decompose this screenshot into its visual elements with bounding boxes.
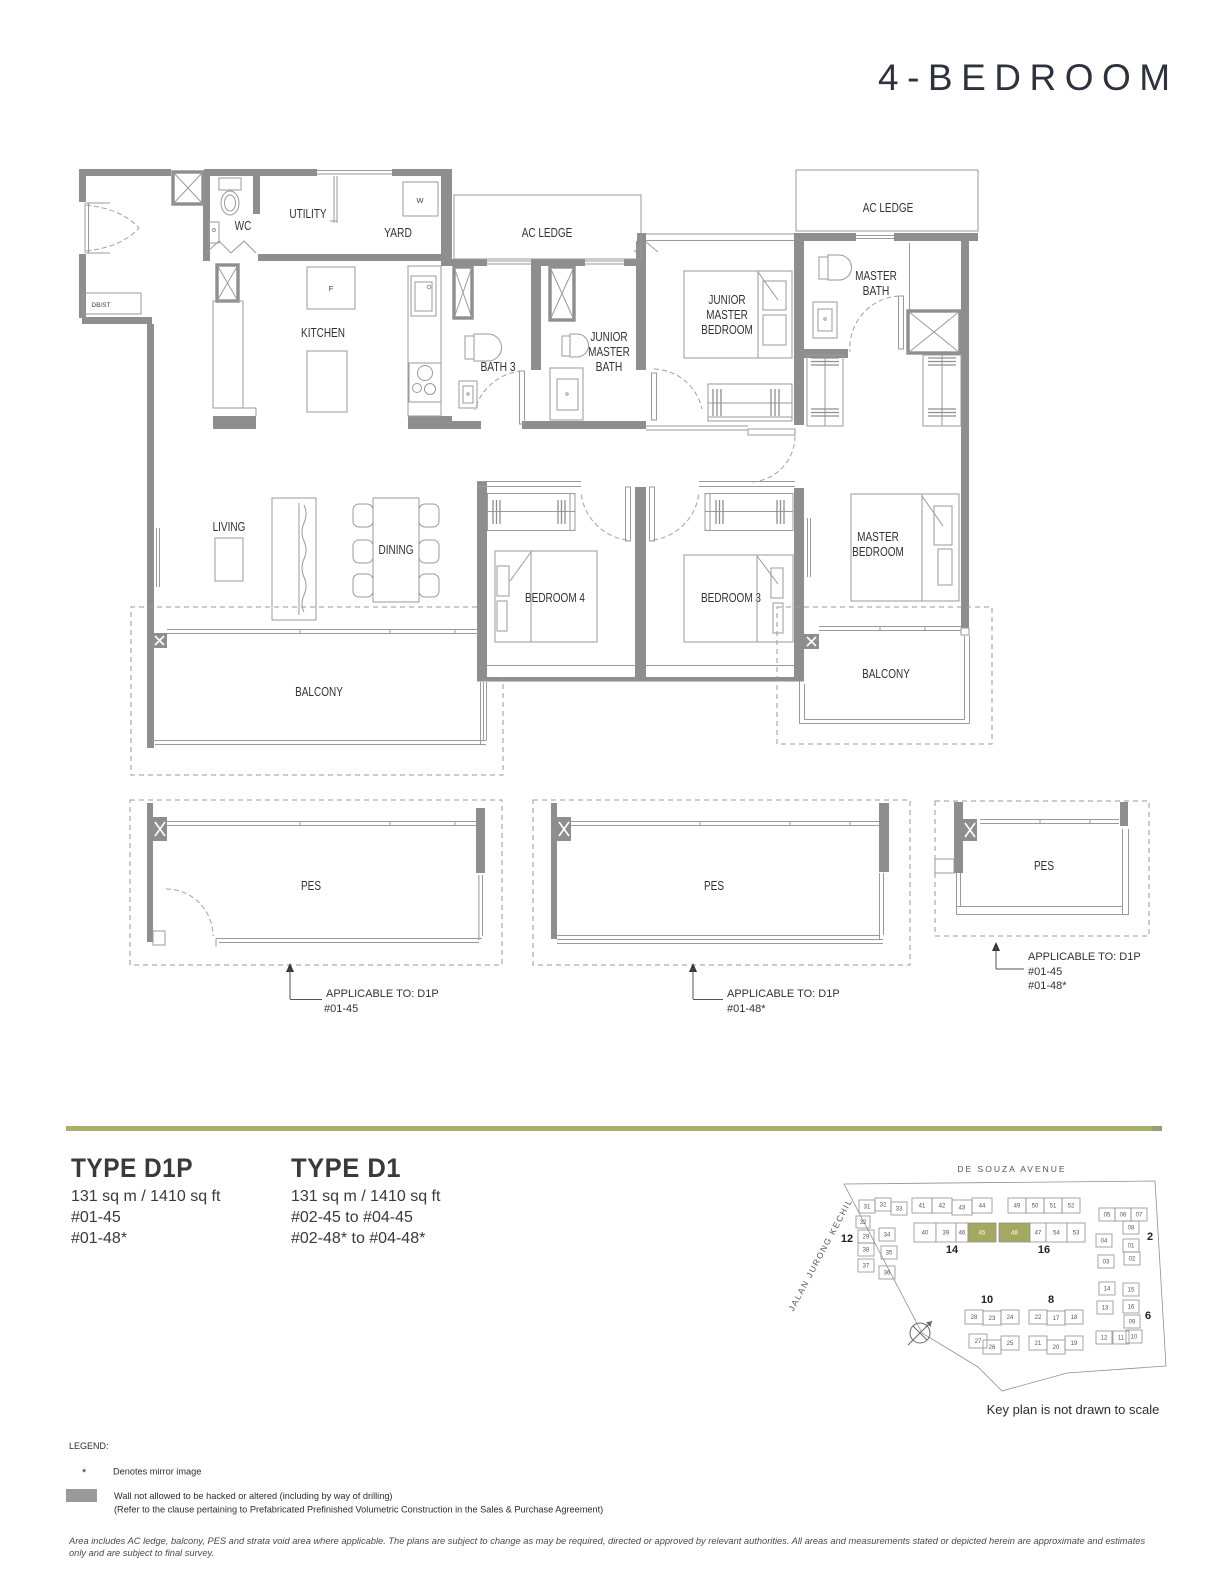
svg-text:10: 10 [981,1294,993,1306]
svg-text:131 sq m / 1410 sq ft: 131 sq m / 1410 sq ft [71,1188,221,1205]
svg-text:52: 52 [1068,1204,1075,1210]
svg-text:16: 16 [1038,1244,1050,1256]
svg-text:34: 34 [884,1233,891,1239]
svg-text:46: 46 [959,1231,966,1237]
svg-text:WC: WC [235,219,252,233]
svg-text:16: 16 [1128,1305,1135,1311]
svg-text:Denotes mirror image: Denotes mirror image [113,1467,201,1477]
svg-text:(Refer to the clause pertainin: (Refer to the clause pertaining to Prefa… [114,1505,603,1515]
svg-text:07: 07 [1136,1213,1143,1219]
svg-text:APPLICABLE TO: D1P: APPLICABLE TO: D1P [727,988,840,1000]
svg-text:YARD: YARD [384,226,412,240]
svg-text:50: 50 [1032,1204,1039,1210]
svg-text:24: 24 [1007,1315,1014,1321]
svg-text:02: 02 [1129,1257,1136,1263]
svg-text:28: 28 [971,1315,978,1321]
svg-text:51: 51 [1050,1204,1057,1210]
svg-text:APPLICABLE TO: D1P: APPLICABLE TO: D1P [1028,951,1141,963]
svg-text:#01-45: #01-45 [71,1209,121,1226]
svg-text:43: 43 [959,1206,966,1212]
svg-text:8: 8 [1048,1294,1054,1306]
svg-text:37: 37 [863,1264,870,1270]
svg-text:PES: PES [704,879,724,893]
svg-text:AC LEDGE: AC LEDGE [522,226,573,240]
svg-text:38: 38 [863,1248,870,1254]
svg-text:PES: PES [1034,859,1054,873]
svg-text:12: 12 [1101,1336,1108,1342]
svg-text:BALCONY: BALCONY [862,667,910,681]
svg-text:only and are subject to final: only and are subject to final survey. [69,1548,214,1558]
svg-text:TYPE D1P: TYPE D1P [71,1153,193,1183]
svg-text:BEDROOM 3: BEDROOM 3 [701,591,761,605]
svg-text:Key plan is not drawn to scale: Key plan is not drawn to scale [987,1402,1160,1417]
svg-text:KITCHEN: KITCHEN [301,326,345,340]
svg-text:47: 47 [1035,1231,1042,1237]
svg-text:49: 49 [1014,1204,1021,1210]
svg-text:BEDROOM: BEDROOM [701,323,753,337]
svg-text:36: 36 [884,1271,891,1277]
svg-text:08: 08 [1128,1226,1135,1232]
svg-text:42: 42 [939,1204,946,1210]
svg-text:18: 18 [1071,1315,1078,1321]
svg-text:25: 25 [1007,1341,1014,1347]
svg-text:19: 19 [1071,1341,1078,1347]
svg-text:40: 40 [922,1231,929,1237]
svg-text:#02-45 to #04-45: #02-45 to #04-45 [291,1209,413,1226]
svg-text:LEGEND:: LEGEND: [69,1441,109,1451]
svg-text:#01-45: #01-45 [324,1003,358,1015]
svg-text:#01-45: #01-45 [1028,966,1062,978]
svg-text:Area includes AC ledge, balcon: Area includes AC ledge, balcony, PES and… [68,1536,1145,1546]
svg-text:14: 14 [946,1244,959,1256]
svg-text:04: 04 [1101,1239,1108,1245]
svg-text:UTILITY: UTILITY [289,207,327,221]
svg-text:MASTER: MASTER [855,269,897,283]
svg-text:44: 44 [979,1204,986,1210]
svg-text:15: 15 [1128,1288,1135,1294]
svg-text:32: 32 [880,1203,887,1209]
svg-text:29: 29 [863,1235,870,1241]
svg-text:W: W [416,196,424,205]
svg-text:39: 39 [943,1231,950,1237]
svg-text:4-BEDROOM: 4-BEDROOM [878,57,1179,98]
svg-text:32: 32 [860,1220,867,1226]
svg-text:48: 48 [1011,1231,1018,1237]
svg-text:22: 22 [1035,1315,1042,1321]
svg-text:MASTER: MASTER [706,308,748,322]
svg-text:LIVING: LIVING [213,520,246,534]
svg-text:31: 31 [864,1205,871,1211]
svg-text:DINING: DINING [379,543,414,557]
svg-text:#01-48*: #01-48* [727,1003,766,1015]
svg-text:17: 17 [1053,1316,1060,1322]
svg-text:AC LEDGE: AC LEDGE [863,201,914,215]
svg-text:27: 27 [975,1339,982,1345]
svg-text:BATH: BATH [863,284,890,298]
svg-text:01: 01 [1128,1244,1135,1250]
svg-text:6: 6 [1145,1310,1151,1322]
svg-text:23: 23 [989,1316,996,1322]
svg-text:Wall not allowed to be hacked: Wall not allowed to be hacked or altered… [114,1491,393,1501]
svg-text:F: F [329,284,334,293]
svg-text:*: * [82,1467,87,1479]
svg-text:26: 26 [989,1345,996,1351]
svg-text:05: 05 [1104,1213,1111,1219]
svg-text:53: 53 [1073,1231,1080,1237]
svg-text:BATH: BATH [596,360,623,374]
svg-text:09: 09 [1129,1320,1136,1326]
svg-text:BATH 3: BATH 3 [481,360,516,374]
svg-text:20: 20 [1053,1345,1060,1351]
svg-text:35: 35 [886,1251,893,1257]
svg-text:APPLICABLE TO: D1P: APPLICABLE TO: D1P [326,988,439,1000]
svg-text:06: 06 [1120,1213,1127,1219]
svg-text:#01-48*: #01-48* [71,1230,127,1247]
svg-text:#02-48* to #04-48*: #02-48* to #04-48* [291,1230,425,1247]
svg-text:03: 03 [1103,1260,1110,1266]
svg-text:JUNIOR: JUNIOR [590,330,627,344]
svg-text:12: 12 [841,1233,853,1245]
svg-text:13: 13 [1102,1306,1109,1312]
svg-text:JUNIOR: JUNIOR [708,293,745,307]
svg-text:DB/ST: DB/ST [91,302,110,309]
svg-text:45: 45 [979,1231,986,1237]
svg-text:33: 33 [896,1207,903,1213]
svg-text:2: 2 [1147,1231,1153,1243]
svg-text:BALCONY: BALCONY [295,685,343,699]
svg-text:BEDROOM: BEDROOM [852,545,904,559]
svg-text:PES: PES [301,879,321,893]
svg-text:41: 41 [919,1204,926,1210]
svg-text:MASTER: MASTER [857,530,899,544]
svg-text:TYPE D1: TYPE D1 [291,1153,401,1183]
svg-text:54: 54 [1053,1231,1060,1237]
svg-text:10: 10 [1131,1335,1138,1341]
svg-text:14: 14 [1104,1287,1111,1293]
svg-text:MASTER: MASTER [588,345,630,359]
svg-text:#01-48*: #01-48* [1028,980,1067,992]
svg-text:131 sq m / 1410 sq ft: 131 sq m / 1410 sq ft [291,1188,441,1205]
svg-text:BEDROOM 4: BEDROOM 4 [525,591,585,605]
svg-text:DE SOUZA AVENUE: DE SOUZA AVENUE [957,1164,1066,1174]
svg-text:21: 21 [1035,1341,1042,1347]
svg-text:11: 11 [1118,1336,1125,1342]
